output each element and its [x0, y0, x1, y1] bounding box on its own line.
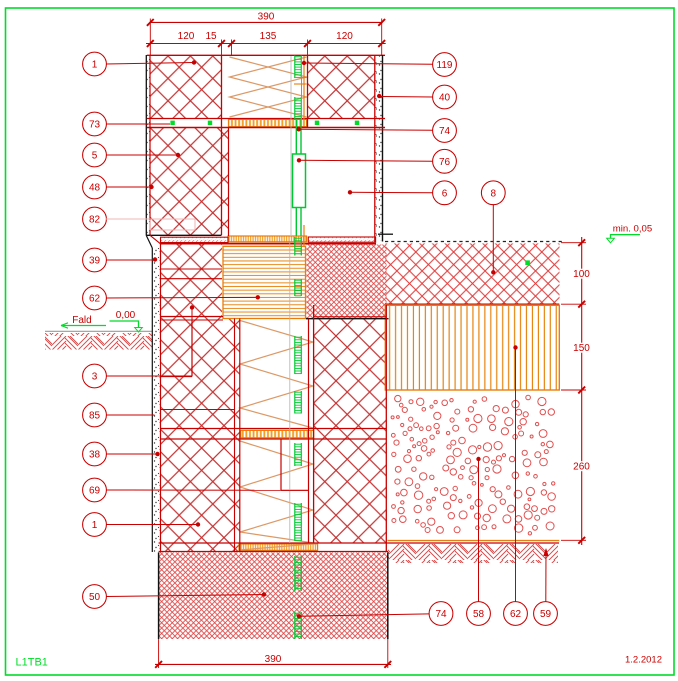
svg-text:74: 74 — [439, 126, 451, 137]
svg-text:74: 74 — [435, 609, 447, 620]
svg-text:1: 1 — [92, 520, 98, 531]
svg-text:120: 120 — [336, 31, 353, 42]
svg-text:38: 38 — [89, 450, 101, 461]
svg-text:85: 85 — [89, 411, 101, 422]
svg-text:58: 58 — [473, 609, 485, 620]
svg-text:15: 15 — [205, 31, 217, 42]
svg-text:3: 3 — [92, 372, 98, 383]
svg-text:L1TB1: L1TB1 — [16, 657, 48, 669]
svg-text:120: 120 — [178, 31, 195, 42]
svg-text:150: 150 — [573, 343, 590, 354]
svg-text:40: 40 — [439, 93, 451, 104]
svg-text:69: 69 — [89, 486, 101, 497]
svg-text:1: 1 — [92, 60, 98, 71]
svg-text:73: 73 — [89, 120, 101, 131]
svg-text:390: 390 — [265, 654, 282, 665]
svg-text:5: 5 — [92, 151, 98, 162]
svg-text:48: 48 — [89, 183, 101, 194]
svg-text:62: 62 — [510, 609, 522, 620]
svg-text:135: 135 — [260, 31, 277, 42]
svg-text:390: 390 — [258, 12, 275, 23]
svg-text:39: 39 — [89, 256, 101, 267]
svg-text:6: 6 — [442, 188, 448, 199]
svg-text:59: 59 — [540, 609, 552, 620]
svg-text:100: 100 — [573, 269, 590, 280]
svg-text:Fald: Fald — [72, 315, 91, 326]
svg-text:76: 76 — [439, 157, 451, 168]
svg-text:82: 82 — [89, 215, 101, 226]
svg-text:62: 62 — [89, 294, 101, 305]
svg-text:min. 0,05: min. 0,05 — [613, 224, 652, 235]
svg-text:119: 119 — [437, 60, 453, 71]
svg-text:1.2.2012: 1.2.2012 — [625, 655, 662, 666]
svg-text:8: 8 — [491, 188, 497, 199]
svg-text:0,00: 0,00 — [116, 310, 136, 321]
svg-text:50: 50 — [89, 592, 101, 603]
svg-text:260: 260 — [573, 462, 590, 473]
